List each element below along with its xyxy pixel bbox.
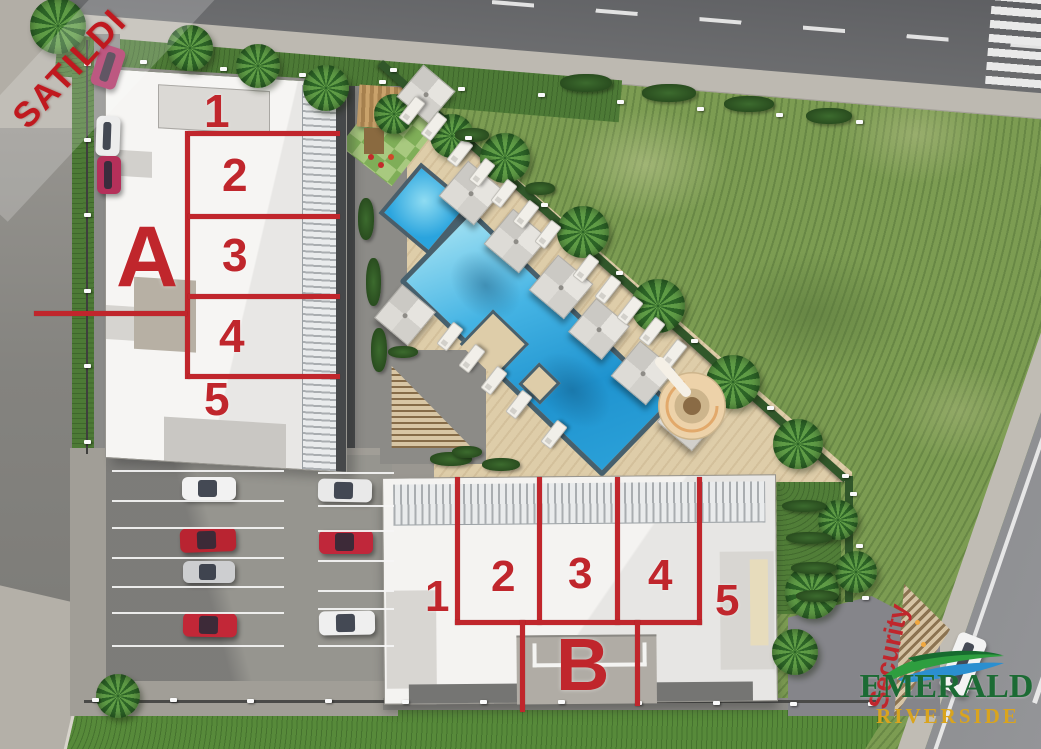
hedge-bush [452,446,482,458]
unit-divider-b-3 [615,477,620,625]
car-windshield [198,480,216,497]
lamp-post [697,107,704,111]
palm-tree [772,629,818,675]
lamp-post [465,136,472,140]
lamp-post [84,289,91,293]
lamp-post [84,213,91,217]
car-windshield [104,161,112,188]
palm-tree [236,44,280,88]
lamp-post [790,702,797,706]
hedge-bush [806,108,852,124]
parking-stall-line [112,612,284,614]
lamp-post [776,113,783,117]
parking-stall-line [318,645,394,647]
lamp-post [538,93,545,97]
parking-stall-line [112,470,284,472]
facade-shadow [336,83,346,472]
hedge-bush [560,74,612,92]
car [182,477,236,500]
hedge-bush [388,346,418,358]
unit-a-1: 1 [204,88,230,134]
pergola-annex [364,128,384,154]
hedge-bush [786,532,832,544]
hedge-bush [642,84,696,102]
hedge-bush [796,590,838,602]
unit-b-3: 3 [568,552,592,596]
lamp-post [299,73,306,77]
unit-divider-b-1 [455,477,460,625]
entrance-box-left [520,620,525,712]
car [183,613,237,638]
car [183,561,235,583]
hedge-bush [455,128,489,142]
lamp-post [842,474,849,478]
parking-stall-line [112,500,284,502]
hedge-bush [724,96,774,112]
parking-stall-line [318,472,394,474]
lamp-post [480,700,487,704]
parking-stall-line [318,530,394,532]
lamp-post [616,271,623,275]
parking-stall-line [318,608,394,610]
lamp-post [691,339,698,343]
crosswalk [985,0,1041,96]
lamp-post [458,87,465,91]
building-b-label: B [556,628,609,702]
site-plan-rendering: 1 2 3 4 5 A 1 2 3 4 5 B SATILDI Security… [0,0,1041,749]
brand-name: EMERALD [852,668,1041,706]
hedge-bush [482,458,520,471]
hedge-bush [782,500,826,512]
lamp-post [170,698,177,702]
car-windshield [197,531,217,549]
lamp-post [862,596,869,600]
car-windshield [199,616,218,634]
entrance-box-right [635,620,640,706]
roof-wood-panel [750,559,769,645]
parking-stall-line [112,645,284,647]
parking-stall-line [112,586,284,588]
flower-bed [368,154,374,160]
lamp-post [92,698,99,702]
parking-stall-line [318,590,394,592]
palm-tree [557,206,609,258]
security-hut-lights [915,620,920,625]
palm-tree [835,551,877,593]
unit-b-1: 1 [425,575,449,619]
brand-subtitle: RIVERSIDE [868,704,1028,729]
hedge-bush [791,562,837,574]
palm-tree [773,419,823,469]
unit-b-4: 4 [648,554,672,598]
car [318,479,372,503]
car-windshield [335,533,353,550]
palm-tree [303,65,349,111]
lamp-post [541,203,548,207]
lamp-post [84,364,91,368]
unit-divider-a-west [34,311,187,316]
lamp-post [713,701,720,705]
lamp-post [379,80,386,84]
balcony-strip [393,481,765,525]
unit-b-5: 5 [715,579,739,623]
hedge-bush [525,182,555,195]
parking-stall-line [112,527,284,529]
unit-a-5: 5 [204,376,230,422]
lamp-post [220,67,227,71]
building-a-label: A [116,214,178,300]
lamp-post [850,492,857,496]
palm-tree [96,674,140,718]
lamp-post [617,100,624,104]
unit-divider-b-4 [697,477,702,625]
lamp-post [247,699,254,703]
unit-divider-a-2 [188,214,340,219]
lamp-post [856,120,863,124]
unit-a-4: 4 [219,313,245,359]
hedge-bush [371,328,387,372]
hedge-bush [358,198,374,240]
unit-divider-b-2 [537,477,542,625]
hedge-bush [366,258,381,306]
unit-a-3: 3 [222,232,248,278]
car [319,611,375,636]
lamp-post [856,544,863,548]
lamp-post [390,68,397,72]
car [180,527,237,553]
car [319,530,373,554]
balcony-strip [302,85,337,471]
lamp-post [325,699,332,703]
unit-divider-a-vertical [185,131,190,379]
parking-stall-line [112,557,284,559]
unit-divider-a-3 [188,294,340,299]
car-windshield [336,614,355,632]
unit-b-2: 2 [491,555,515,599]
unit-a-2: 2 [222,152,248,198]
water-slide [640,350,736,446]
car-windshield [199,564,217,580]
car-windshield [103,121,112,150]
parking-stall-line [318,560,394,562]
parking-stall-line [318,505,394,507]
lamp-post [402,700,409,704]
car [97,156,121,194]
lamp-post [767,406,774,410]
lamp-post [84,440,91,444]
car-windshield [334,482,353,499]
